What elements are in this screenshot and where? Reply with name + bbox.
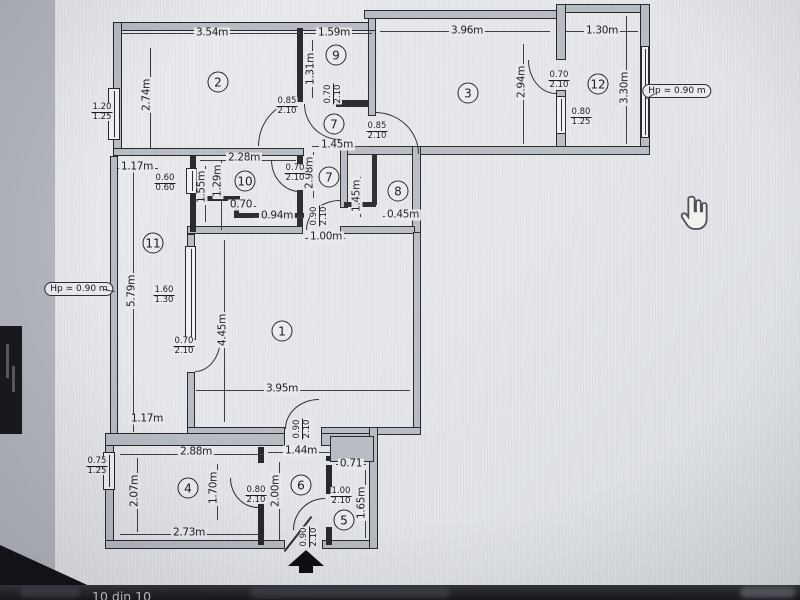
dimension-label: 3.96m	[449, 26, 485, 37]
wall-segment	[412, 146, 421, 234]
dimension-label: 1.29m	[213, 163, 224, 199]
room-number-circle: 8	[388, 181, 409, 202]
opening-spec-label: 0.902.10	[300, 527, 318, 548]
wall-segment	[413, 232, 421, 435]
wall-segment	[556, 4, 566, 60]
room-number-circle: 2	[208, 72, 229, 93]
screen-photo: 3.54m1.59m3.96m1.30m1.17m2.28m0.700.94m1…	[0, 0, 800, 600]
dimension-label: 2.98m	[305, 155, 316, 191]
wall-segment	[187, 226, 303, 234]
dimension-label: 2.28m	[226, 153, 262, 164]
entrance-arrow-stem	[299, 566, 313, 573]
wall-segment	[105, 433, 285, 446]
opening-spec-label: 0.600.60	[155, 174, 176, 192]
entrance-arrow-icon	[288, 550, 324, 566]
dimension-label: 2.74m	[142, 77, 153, 113]
opening-spec-label: 1.002.10	[331, 487, 352, 505]
dimension-label: 1.55m	[197, 169, 208, 205]
wall-segment	[556, 4, 650, 13]
parapet-height-label: Hp = 0.90 m	[642, 84, 711, 98]
room-number-circle: 9	[326, 45, 347, 66]
dimension-label: 2.07m	[130, 473, 141, 509]
dimension-label: 1.45m	[352, 178, 363, 214]
dimension-line	[196, 390, 410, 391]
room-number-circle: 12	[588, 74, 609, 95]
dimension-label: 4.45m	[218, 312, 229, 348]
dimension-label: 5.79m	[127, 273, 138, 309]
room-number-circle: 7	[319, 167, 340, 188]
wall-segment	[368, 30, 376, 116]
wall-segment	[187, 372, 195, 435]
dimension-label: 1.00m	[308, 232, 344, 243]
dimension-label: 1.59m	[316, 28, 352, 39]
wall-segment	[372, 155, 377, 205]
opening-spec-label: 0.801.25	[571, 108, 592, 126]
dimension-label: 0.45m	[385, 210, 421, 221]
dimension-label: 3.54m	[194, 28, 230, 39]
opening-spec-label: 0.702.10	[174, 337, 195, 355]
opening-spec-label: 0.702.10	[285, 164, 306, 182]
opening-spec-label: 0.751.25	[87, 457, 108, 475]
room-number-circle: 7	[324, 114, 345, 135]
wall-segment	[110, 156, 118, 442]
room-number-circle: 4	[178, 478, 199, 499]
dimension-label: 1.17m	[119, 162, 155, 173]
opening-spec-label: 0.702.10	[549, 71, 570, 89]
dimension-label: 3.95m	[264, 384, 300, 395]
wall-segment	[258, 447, 264, 463]
page-counter: 10 din 10	[92, 588, 151, 600]
wall-segment	[258, 503, 264, 545]
dimension-label: 1.31m	[306, 51, 317, 87]
dimension-label: 0.94m	[259, 211, 295, 222]
dimension-label: 1.65m	[357, 485, 368, 521]
dimension-label: 2.73m	[171, 528, 207, 539]
wall-segment	[326, 527, 332, 545]
dimension-label: 1.70m	[209, 470, 220, 506]
window-symbol	[185, 246, 196, 340]
opening-spec-label: 1.201.25	[92, 103, 113, 121]
wall-segment	[113, 148, 304, 156]
dimension-label: 1.44m	[283, 446, 319, 457]
dimension-label: 2.88m	[178, 447, 214, 458]
wall-segment	[297, 28, 303, 102]
hand-pointer-cursor	[678, 192, 714, 236]
left-thumbnail-strip[interactable]	[0, 326, 22, 434]
floor-plan: 3.54m1.59m3.96m1.30m1.17m2.28m0.700.94m1…	[0, 0, 800, 600]
dimension-label: 1.45m	[319, 140, 355, 151]
opening-spec-label: 0.852.10	[277, 97, 298, 115]
opening-spec-label: 0.852.10	[367, 122, 388, 140]
door-swing-arc	[293, 498, 325, 530]
dimension-label: 1.17m	[129, 414, 165, 425]
opening-spec-label: 0.802.10	[246, 486, 267, 504]
opening-spec-label: 0.702.10	[324, 84, 342, 105]
opening-spec-label: 1.601.30	[154, 286, 175, 304]
dimension-label: 1.30m	[584, 26, 620, 37]
dimension-label: 0.70	[228, 200, 254, 211]
dimension-label: 0.71	[338, 459, 364, 470]
opening-spec-label: 0.902.10	[293, 419, 311, 440]
room-number-circle: 11	[143, 233, 164, 254]
dimension-label: 2.00m	[271, 473, 282, 509]
room-number-circle: 6	[291, 475, 312, 496]
room-number-circle: 1	[272, 321, 293, 342]
wall-segment	[364, 10, 566, 19]
opening-spec-label: 0.902.10	[310, 206, 328, 227]
wall-segment	[340, 226, 415, 234]
room-number-circle: 3	[458, 83, 479, 104]
dimension-label: 2.94m	[517, 64, 528, 100]
status-bar[interactable]: 10 din 10	[0, 585, 800, 600]
wall-segment	[340, 146, 348, 208]
dimension-label: 3.30m	[620, 70, 631, 106]
room-number-circle: 10	[235, 171, 256, 192]
window-symbol	[556, 96, 566, 134]
room-number-circle: 5	[334, 510, 355, 531]
